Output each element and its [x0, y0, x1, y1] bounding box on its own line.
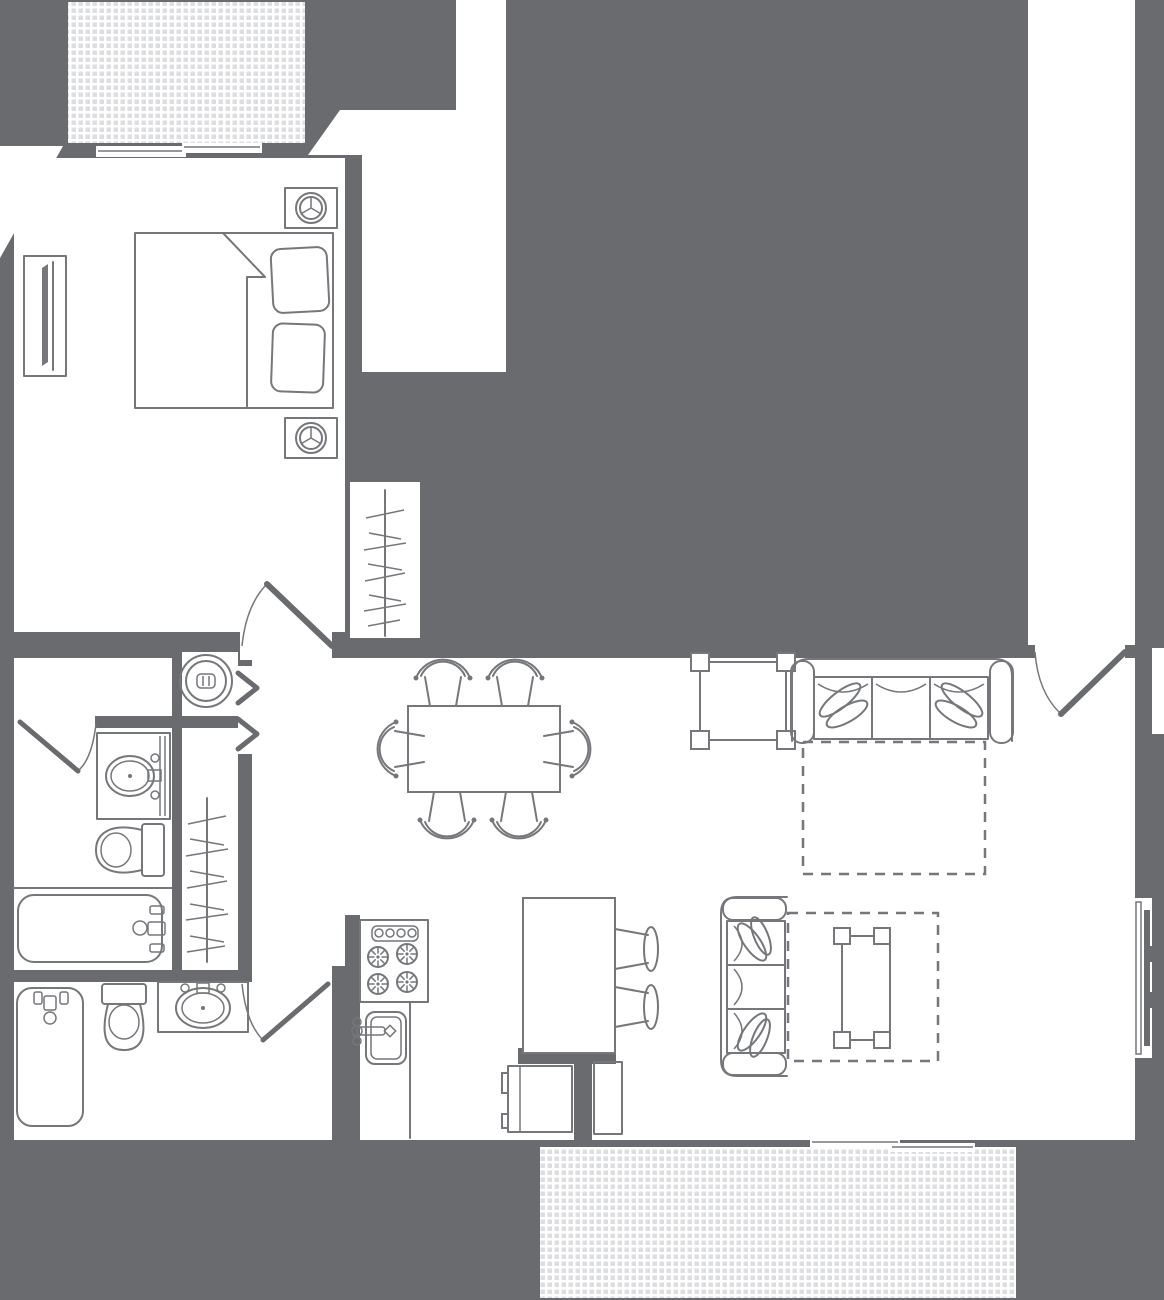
wall-fridge-separator — [574, 1050, 592, 1140]
linen-closet-floor — [182, 728, 238, 970]
dining-table-icon — [408, 706, 560, 792]
wall-bath1 — [95, 716, 172, 728]
patio-bottom-hatch — [540, 1147, 1016, 1298]
floor-plan-page — [0, 0, 1164, 1300]
exterior-notch-right — [1152, 648, 1164, 734]
floor-plan-svg — [0, 0, 1164, 1300]
entry-door-opening — [1035, 643, 1125, 660]
entry-corridor — [1028, 0, 1135, 645]
sliding-door-icon — [182, 143, 262, 153]
wall-kitchen-west-lower — [332, 966, 360, 1140]
balcony-top-hatch — [68, 2, 305, 143]
island-counter-icon — [523, 898, 615, 1053]
bedroom-floor — [14, 158, 345, 632]
